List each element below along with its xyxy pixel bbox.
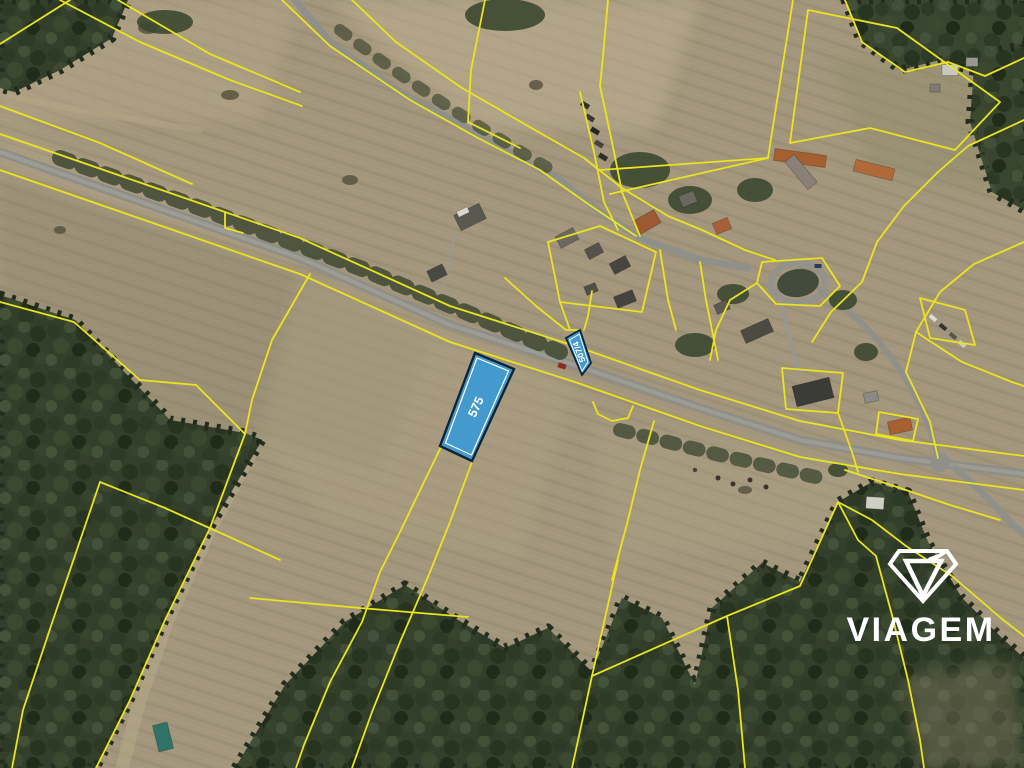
building [966, 58, 978, 67]
building [930, 84, 940, 92]
building [866, 496, 885, 509]
viagem-wordmark: VIAGEM [846, 611, 995, 649]
road-junction [930, 452, 950, 472]
satellite-map: 575 507/4 VIAGEM [0, 0, 1024, 768]
satellite-map-image: 575 507/4 VIAGEM [0, 0, 1024, 768]
